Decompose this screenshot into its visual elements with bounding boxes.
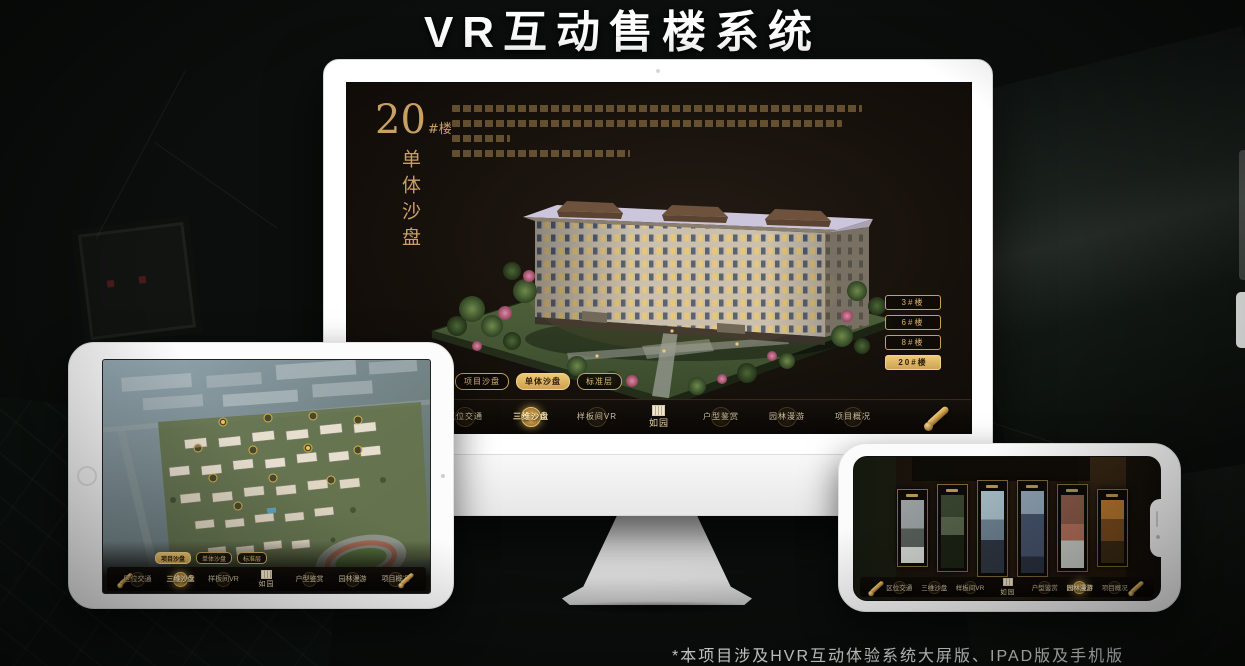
app-logo-text: 如园 (259, 579, 275, 589)
scene-card[interactable] (1057, 484, 1088, 572)
monitor-stand (560, 513, 754, 605)
floor-button-active[interactable]: 20#楼 (885, 355, 941, 370)
seal-stamp-icon (261, 570, 272, 579)
subtab-standard-floor[interactable]: 标准层 (237, 552, 267, 564)
nav-item-showroom-vr[interactable]: 样板间VR (208, 567, 240, 591)
ipad-subtab-row: 项目沙盘 单体沙盘 标准层 (155, 552, 267, 564)
app-logo: 如园 (259, 570, 275, 589)
nav-item-label: 样板间VR (577, 411, 617, 422)
phone-nav-bar: 区位交通 三维沙盘 样板间VR 如园 户型鉴赏 (860, 577, 1154, 597)
background-plaque (78, 222, 196, 340)
nav-item-label: 户型鉴赏 (703, 411, 739, 422)
nav-item-garden-roam[interactable]: 园林漫游 (765, 400, 809, 433)
floor-button[interactable]: 6#楼 (885, 315, 941, 330)
nav-item-showroom-vr[interactable]: 样板间VR (956, 577, 985, 597)
floor-button[interactable]: 3#楼 (885, 295, 941, 310)
intro-text-line (452, 105, 862, 112)
speaker-icon (1156, 511, 1158, 527)
nav-item-label: 园林漫游 (769, 411, 805, 422)
nav-item-label: 户型鉴赏 (1032, 582, 1058, 592)
nav-item-3d-sandtable[interactable]: 三维沙盘 (921, 577, 948, 597)
home-button[interactable] (77, 466, 97, 486)
ipad-screen: 项目沙盘 单体沙盘 标准层 区位交通 三维沙盘 样板间VR (102, 359, 431, 594)
building-heading: 20#楼 (375, 99, 452, 141)
nav-item-garden-roam[interactable]: 园林漫游 (1066, 577, 1093, 597)
page-title: VR互动售楼系统 (0, 0, 1245, 56)
subtab-project-sandtable[interactable]: 项目沙盘 (155, 552, 191, 564)
ipad-nav-bar: 区位交通 三维沙盘 样板间VR 如园 户型鉴赏 (107, 567, 426, 591)
floor-selector: 3#楼 6#楼 8#楼 20#楼 (885, 295, 941, 370)
nav-item-label: 区位交通 (124, 574, 152, 584)
subtab-project-sandtable[interactable]: 项目沙盘 (455, 373, 509, 390)
phone-screen: 区位交通 三维沙盘 样板间VR 如园 户型鉴赏 (853, 456, 1161, 601)
nav-item-label: 园林漫游 (339, 574, 367, 584)
camera-icon (441, 474, 445, 478)
seal-stamp-icon (1003, 578, 1013, 586)
nav-item-project-overview[interactable]: 项目概况 (1101, 577, 1128, 597)
nav-item-showroom-vr[interactable]: 样板间VR (575, 400, 619, 433)
scene-card[interactable] (1017, 480, 1048, 577)
building-model-viewport[interactable] (417, 141, 907, 411)
seal-stamp-icon (652, 405, 665, 416)
subtab-single-sandtable[interactable]: 单体沙盘 (196, 552, 232, 564)
camera-icon (1156, 535, 1160, 539)
nav-item-label: 项目概况 (1102, 582, 1128, 592)
nav-item-project-overview[interactable]: 项目概况 (831, 400, 875, 433)
building-number: 20 (375, 97, 426, 143)
nav-item-floorplans[interactable]: 户型鉴赏 (294, 567, 326, 591)
nav-item-label: 三维沙盘 (513, 411, 549, 422)
nav-item-label: 户型鉴赏 (296, 574, 324, 584)
nav-item-3d-sandtable[interactable]: 三维沙盘 (165, 567, 197, 591)
nav-item-label: 项目概况 (835, 411, 871, 422)
phone-notch (1150, 499, 1166, 557)
subtab-row: 项目沙盘 单体沙盘 标准层 (455, 373, 622, 390)
background-cropped-card (1236, 292, 1245, 348)
scene-gallery (894, 475, 1130, 581)
app-logo-text: 如园 (649, 416, 669, 429)
gold-scroll-icon[interactable] (1128, 578, 1147, 597)
app-logo: 如园 (649, 405, 669, 429)
nav-item-floorplans[interactable]: 户型鉴赏 (699, 400, 743, 433)
gold-scroll-icon[interactable] (868, 578, 887, 597)
monitor-stand-shadow (545, 601, 770, 615)
background-road-line (154, 142, 277, 229)
app-logo: 如园 (1000, 578, 1015, 596)
nav-item-label: 园林漫游 (1067, 582, 1093, 592)
background-cropped-card (1239, 150, 1245, 280)
nav-item-label: 样板间VR (956, 582, 985, 592)
scene-card[interactable] (977, 480, 1008, 577)
gold-scroll-icon[interactable] (923, 401, 953, 431)
subtab-single-sandtable[interactable]: 单体沙盘 (516, 373, 570, 390)
promo-stage: VR互动售楼系统 20#楼 单体沙盘 (0, 0, 1245, 666)
nav-item-label: 区位交通 (886, 582, 912, 592)
gold-scroll-icon[interactable] (398, 570, 417, 589)
nav-item-label: 三维沙盘 (921, 582, 947, 592)
scene-card[interactable] (897, 489, 928, 567)
nav-item-label: 三维沙盘 (167, 574, 195, 584)
nav-item-3d-sandtable[interactable]: 三维沙盘 (509, 400, 553, 433)
footnote-text: *本项目涉及HVR互动体验系统大屏版、IPAD版及手机版 (672, 642, 1124, 666)
nav-item-location[interactable]: 区位交通 (886, 577, 913, 597)
app-logo-text: 如园 (1000, 586, 1015, 596)
nav-item-location[interactable]: 区位交通 (122, 567, 154, 591)
intro-text-line (452, 120, 842, 127)
nav-item-garden-roam[interactable]: 园林漫游 (337, 567, 369, 591)
subtab-standard-floor[interactable]: 标准层 (577, 373, 622, 390)
nav-item-floorplans[interactable]: 户型鉴赏 (1031, 577, 1058, 597)
scene-card[interactable] (937, 484, 968, 572)
nav-item-label: 样板间VR (208, 574, 239, 584)
building-number-suffix: #楼 (428, 122, 452, 137)
floor-button[interactable]: 8#楼 (885, 335, 941, 350)
ipad-device: 项目沙盘 单体沙盘 标准层 区位交通 三维沙盘 样板间VR (68, 342, 454, 609)
scene-card[interactable] (1097, 489, 1128, 567)
phone-device: 区位交通 三维沙盘 样板间VR 如园 户型鉴赏 (838, 443, 1181, 612)
webcam-icon (656, 69, 660, 73)
